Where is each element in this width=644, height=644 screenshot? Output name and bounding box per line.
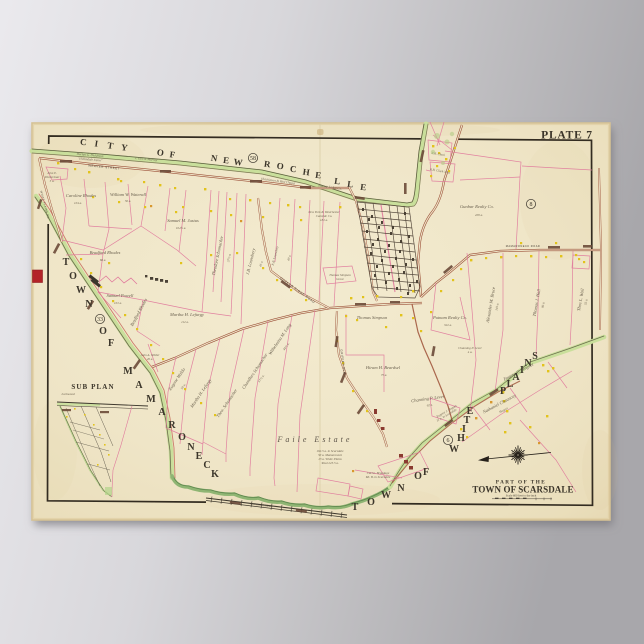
svg-text:F: F [423,467,429,478]
svg-text:SUB PLAN: SUB PLAN [71,383,114,391]
svg-text:4 a.: 4 a. [468,350,473,354]
svg-text:Mt. B. in Scarsdale: Mt. B. in Scarsdale [365,475,391,479]
svg-text:PLATE 7: PLATE 7 [541,130,593,142]
svg-text:William W. Waterall: William W. Waterall [110,192,147,197]
svg-text:322 a.: 322 a. [444,323,452,327]
svg-text:200 a.: 200 a. [475,213,483,217]
svg-text:E: E [196,451,203,462]
svg-text:R: R [168,420,176,431]
svg-text:A: A [135,380,143,391]
svg-text:F: F [108,338,114,349]
svg-text:Martha H. Lefurgy: Martha H. Lefurgy [169,312,204,317]
svg-text:75 a.: 75 a. [381,373,388,377]
svg-text:S: S [532,351,538,362]
svg-text:58: 58 [250,156,256,162]
svg-text:E: E [467,406,474,417]
svg-text:K: K [211,469,219,480]
svg-text:O: O [99,326,107,337]
svg-text:5 a.: 5 a. [50,179,55,183]
svg-text:104 a.: 104 a. [74,201,82,205]
svg-text:H: H [302,167,310,178]
svg-text:Faile Estate: Faile Estate [277,435,353,444]
svg-text:Hiram H. Beardsel: Hiram H. Beardsel [365,365,401,370]
svg-text:Bradford Rhodes: Bradford Rhodes [90,250,121,255]
svg-text:20 a.: 20 a. [147,357,154,361]
svg-text:P: P [500,386,506,397]
svg-text:C: C [80,137,88,148]
svg-text:W: W [76,285,86,296]
svg-text:Lockwood: Lockwood [60,392,75,396]
svg-text:Grove: Grove [336,277,344,281]
svg-text:W: W [381,490,391,501]
svg-text:C: C [289,164,297,175]
svg-text:O: O [178,432,186,443]
svg-text:104½ a.: 104½ a. [176,226,187,230]
svg-text:T: T [63,257,70,268]
svg-text:W: W [449,444,459,455]
svg-text:W: W [233,157,243,168]
svg-text:181 a.: 181 a. [320,218,328,222]
svg-text:Thomas Simpson: Thomas Simpson [357,315,388,320]
svg-text:O: O [276,161,284,172]
svg-text:101 a.: 101 a. [114,301,122,305]
svg-text:N: N [187,442,195,453]
svg-text:N: N [85,299,93,310]
svg-text:O: O [414,471,422,482]
svg-text:O: O [156,147,164,158]
svg-text:N: N [397,483,405,494]
svg-text:33: 33 [97,317,103,323]
svg-text:Gunbar Realty Co.: Gunbar Realty Co. [460,204,494,209]
svg-text:Samuel Powell: Samuel Powell [107,293,135,298]
svg-text:Caroline Rhodes: Caroline Rhodes [66,193,96,198]
svg-text:66 a.: 66 a. [100,258,107,262]
svg-text:N: N [524,358,532,369]
svg-text:C: C [203,460,210,471]
svg-text:O: O [367,497,375,508]
svg-text:112 a.: 112 a. [181,320,189,324]
svg-text:M: M [146,394,156,405]
svg-text:A: A [158,407,166,418]
svg-text:MAMARONECK ROAD: MAMARONECK ROAD [506,244,541,248]
svg-text:Samuel M. Justus: Samuel M. Justus [167,218,199,223]
svg-text:Scale 600 feet to the inch: Scale 600 feet to the inch [506,494,537,498]
svg-text:Putnam Realty Co.: Putnam Realty Co. [432,315,467,320]
svg-text:T: T [352,502,359,513]
svg-text:M: M [123,366,133,377]
svg-text:8: 8 [530,202,533,208]
svg-text:50 a.: 50 a. [125,199,132,203]
svg-text:O: O [69,271,77,282]
svg-text:Total 225.5 a.: Total 225.5 a. [321,461,339,465]
